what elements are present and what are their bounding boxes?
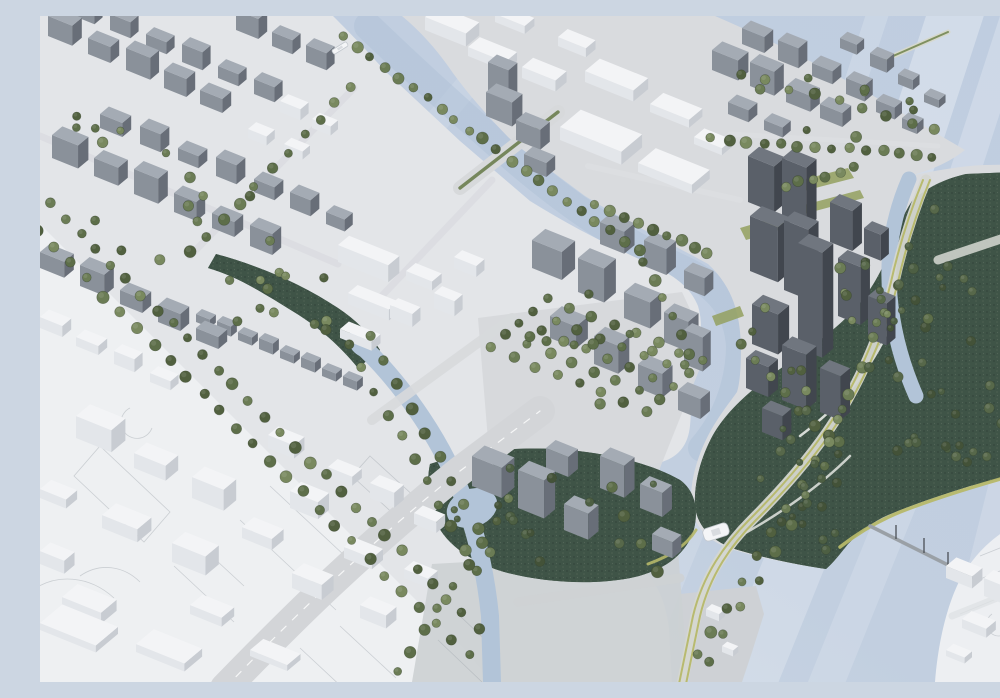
city-model-svg <box>40 16 1000 682</box>
city-model-photo <box>40 16 1000 682</box>
